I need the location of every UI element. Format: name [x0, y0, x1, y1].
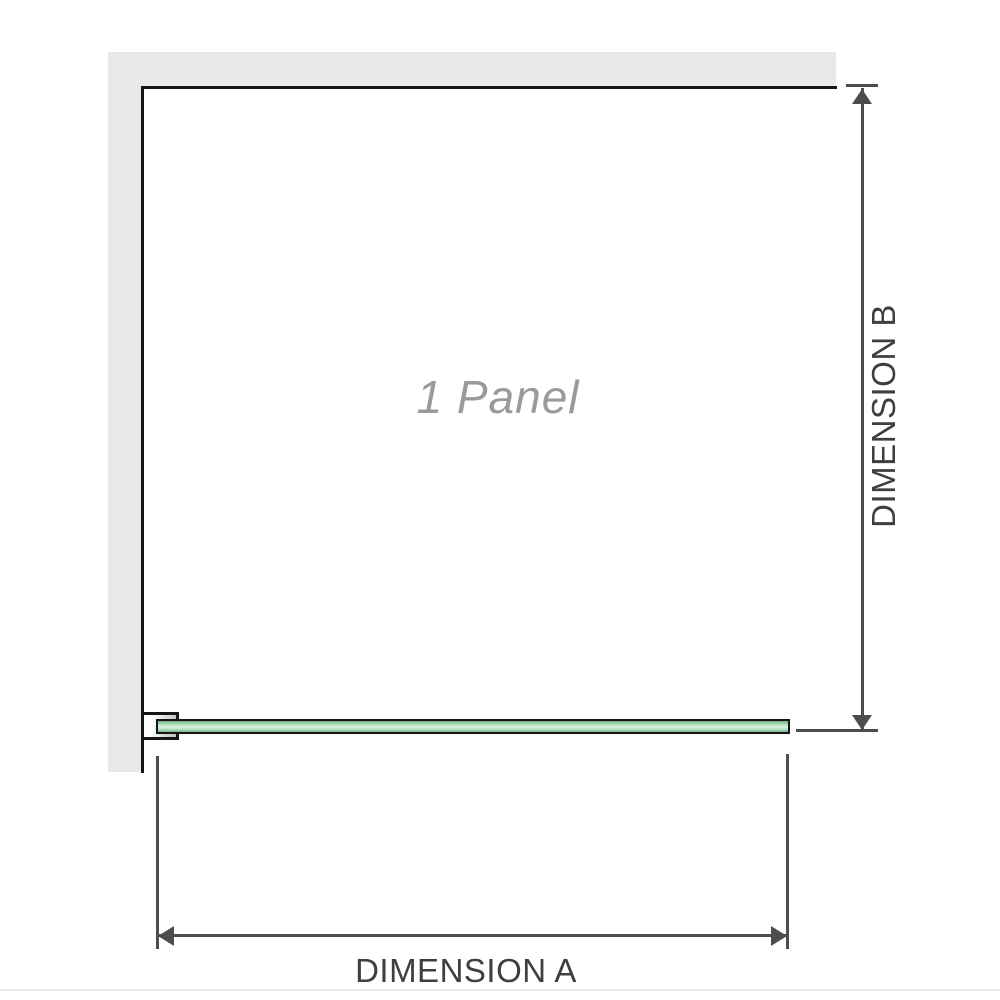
arrow-down-icon	[852, 715, 872, 730]
dimension-b-label: DIMENSION B	[865, 304, 903, 528]
wall-top	[108, 52, 836, 87]
dimension-b-line	[861, 88, 864, 730]
wall-left	[108, 52, 142, 772]
arrow-left-icon	[158, 926, 174, 946]
dimension-b-top-tick	[846, 84, 878, 87]
wall-inner-edge-vertical	[141, 86, 144, 773]
dimension-a-extension-line-right	[786, 754, 789, 949]
dimension-a-label: DIMENSION A	[355, 952, 577, 990]
arrow-up-icon	[852, 89, 872, 104]
shower-panel-dimension-diagram: 1 Panel DIMENSION B DIMENSION A	[0, 0, 1000, 1000]
image-bottom-divider	[0, 989, 1000, 991]
arrow-right-icon	[771, 926, 787, 946]
panel-count-label: 1 Panel	[416, 370, 579, 424]
dimension-a-line	[159, 934, 786, 937]
wall-inner-edge-horizontal	[141, 86, 837, 89]
dimension-a-extension-line-left	[156, 756, 159, 949]
glass-panel	[156, 719, 790, 734]
